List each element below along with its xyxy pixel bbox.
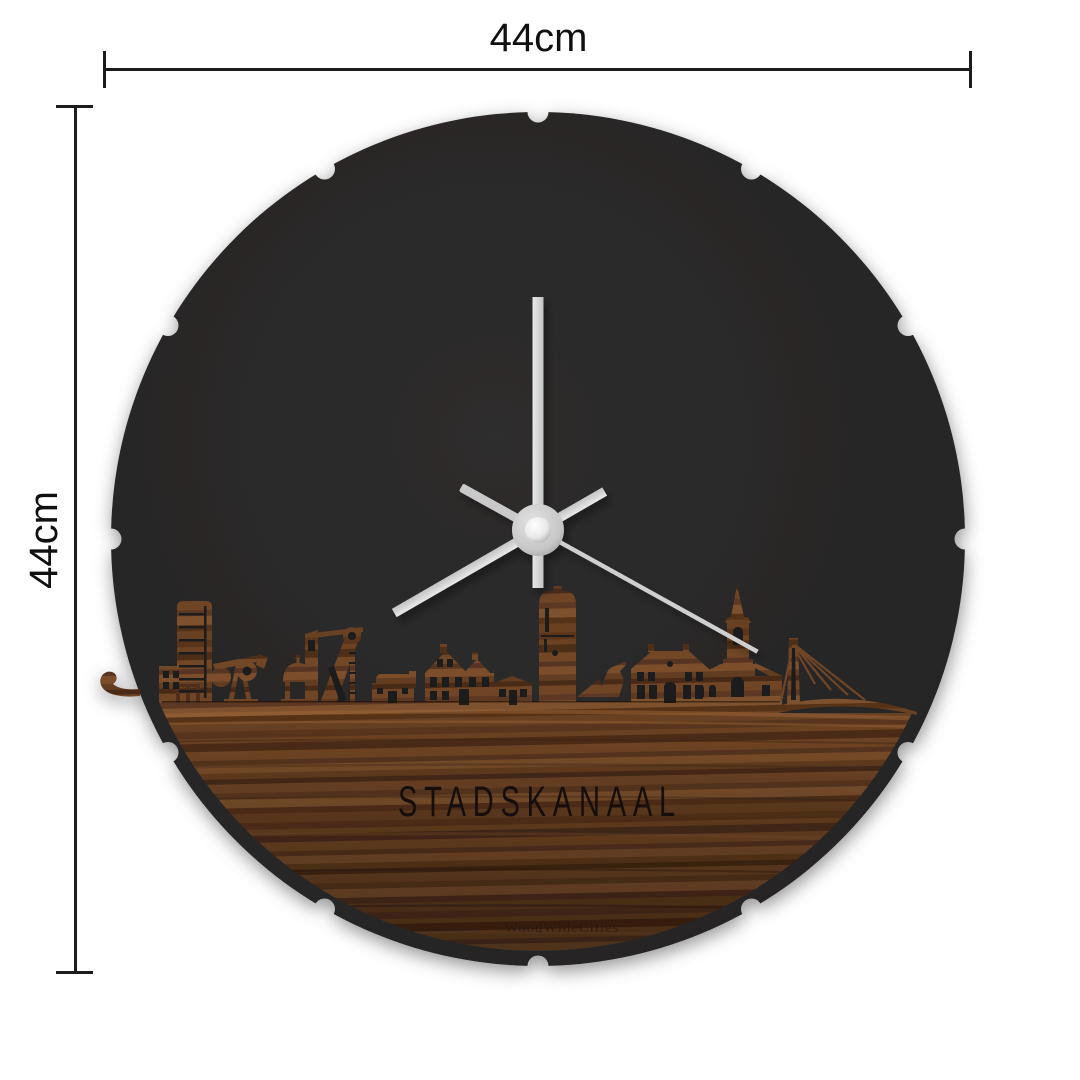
hub-ball: [525, 517, 551, 543]
product-dimension-image: 44cm 44cm: [0, 0, 1080, 1080]
watermark-text: WoodWideCities: [505, 920, 620, 935]
skyline-clock: STADSKANAAL WoodWideCities: [0, 0, 1080, 1080]
city-name-text: STADSKANAAL: [398, 778, 682, 826]
wood-base-shading: [159, 702, 912, 951]
ground-seam: [162, 701, 780, 703]
